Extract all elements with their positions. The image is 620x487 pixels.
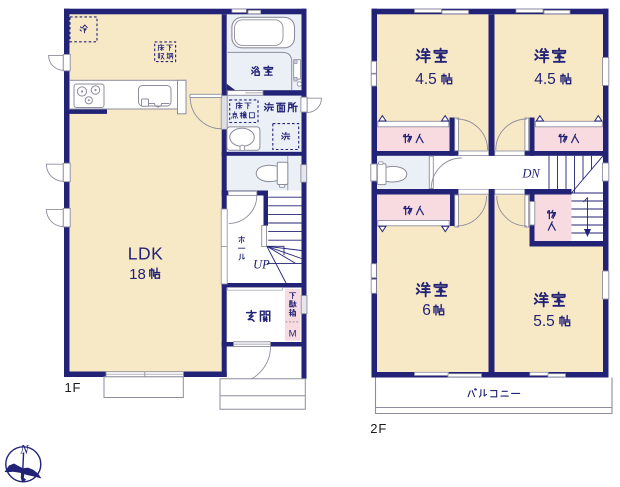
svg-text:1F: 1F bbox=[65, 380, 82, 395]
svg-text:2F: 2F bbox=[370, 421, 387, 436]
svg-text:4.5: 4.5 bbox=[534, 71, 556, 88]
svg-text:4.5: 4.5 bbox=[415, 71, 437, 88]
svg-text:DN: DN bbox=[521, 166, 540, 180]
svg-text:N: N bbox=[19, 443, 29, 457]
svg-text:M: M bbox=[289, 329, 297, 340]
svg-text:6: 6 bbox=[422, 302, 431, 319]
svg-text:5.5: 5.5 bbox=[533, 313, 555, 330]
svg-text:UP: UP bbox=[253, 257, 270, 271]
svg-text:LDK: LDK bbox=[128, 244, 164, 264]
svg-text:18: 18 bbox=[129, 266, 146, 283]
